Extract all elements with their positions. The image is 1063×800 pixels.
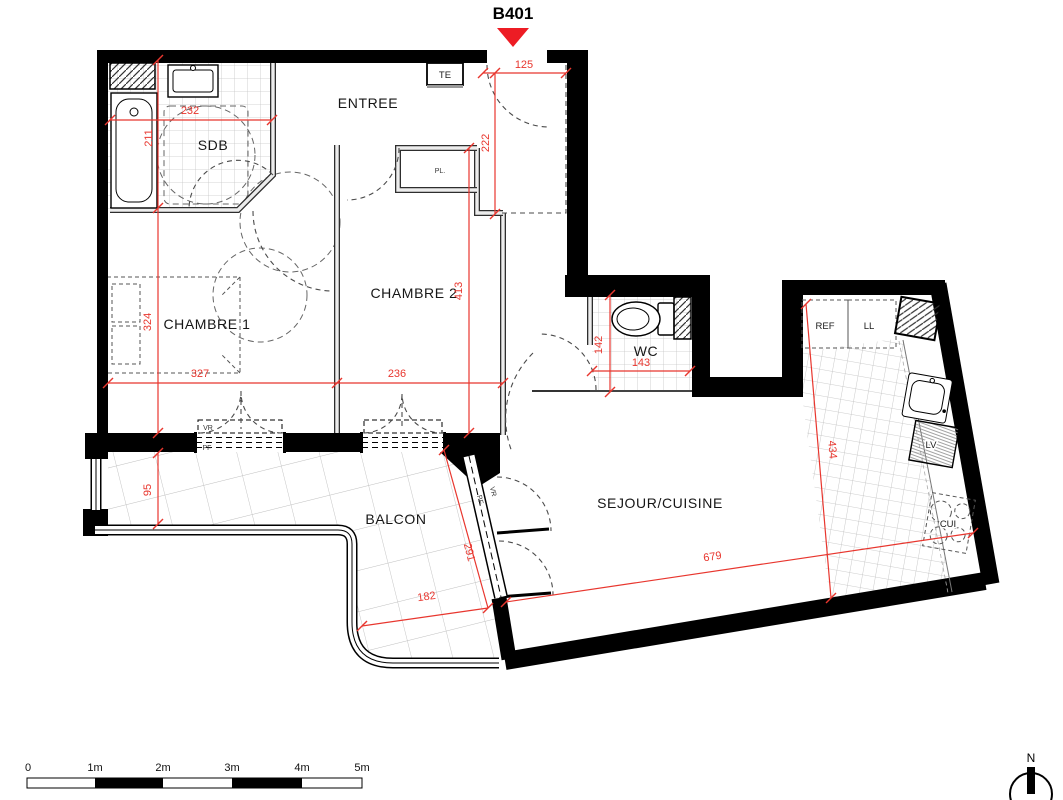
scale-0: 0 [25, 762, 31, 774]
bathtub [111, 93, 157, 208]
entry-zone-dashed [502, 65, 566, 213]
scale-5m: 5m [354, 762, 369, 774]
balcony-door-swing-2 [499, 541, 553, 595]
dim-chambre1-width: 327 [191, 368, 209, 380]
room-label-chambre1: CHAMBRE 1 [163, 316, 250, 332]
dim-sdb-depth: 211 [143, 129, 155, 147]
north-arrow-icon: N [1010, 751, 1052, 800]
vr-label-chambre1: VR [203, 425, 213, 432]
dim-kitchen-depth: 434 [825, 440, 839, 459]
dim-wc-depth: 142 [593, 336, 605, 354]
kitchen-sink [902, 373, 953, 424]
vr-label-sejour: VR [488, 486, 497, 497]
dim-balcon-width: 182 [417, 590, 437, 604]
dishwasher-label: LV [926, 440, 938, 451]
window-chambre2 [360, 394, 446, 453]
dim-sejour-width: 679 [703, 550, 723, 565]
dim-wc-width: 143 [632, 357, 650, 369]
dim-entry-width: 125 [515, 59, 533, 71]
duct-hatch-sdb [110, 63, 155, 89]
north-label: N [1027, 751, 1036, 765]
chambre2-door-swing [347, 148, 399, 200]
toilet [612, 302, 674, 336]
te-label: TE [439, 70, 451, 81]
entry-door-swing [487, 65, 549, 127]
dim-entry-depth: 222 [480, 134, 492, 152]
floor-plan: SDB ENTREE CHAMBRE 1 CHAMBRE 2 WC SEJOUR… [0, 0, 1063, 800]
balcony-door-swing-1 [497, 477, 551, 531]
unit-marker: B401 [493, 4, 534, 47]
pl-label: PL. [435, 168, 446, 175]
dim-chambre1-depth: 324 [142, 313, 154, 331]
room-label-chambre2: CHAMBRE 2 [370, 285, 457, 301]
room-label-entree: ENTREE [338, 95, 398, 111]
dim-balcon-depth: 95 [142, 484, 154, 496]
hob-label: CUI [940, 519, 956, 530]
scale-2m: 2m [155, 762, 170, 774]
sink-sdb [168, 65, 218, 97]
sejour-door-swing [506, 353, 533, 452]
dim-chambre2-depth: 413 [453, 282, 465, 300]
dim-sdb-width: 232 [181, 105, 199, 117]
balcony-door-leaf-1 [497, 529, 549, 533]
scale-3m: 3m [224, 762, 239, 774]
window-chambre1 [194, 391, 286, 453]
chambre1-door-swing [253, 211, 333, 291]
duct-hatch-wc [674, 297, 691, 339]
room-label-balcon: BALCON [365, 511, 426, 527]
duct-hatch-kitchen [895, 297, 941, 340]
scale-4m: 4m [294, 762, 309, 774]
room-label-sejour: SEJOUR/CUISINE [597, 495, 723, 511]
balcony-floor-tiles [108, 452, 499, 663]
fridge-label: REF [816, 321, 835, 332]
dim-chambre2-width: 236 [388, 368, 406, 380]
pf-label-chambre1: PF [203, 445, 212, 452]
floor-finishes [108, 63, 952, 663]
scale-bar: 0 1m 2m 3m 4m 5m [25, 762, 370, 788]
unit-marker-triangle-icon [497, 28, 529, 47]
scale-1m: 1m [87, 762, 102, 774]
washer-label: LL [864, 321, 875, 332]
room-label-sdb: SDB [198, 137, 229, 153]
unit-title: B401 [493, 4, 534, 23]
